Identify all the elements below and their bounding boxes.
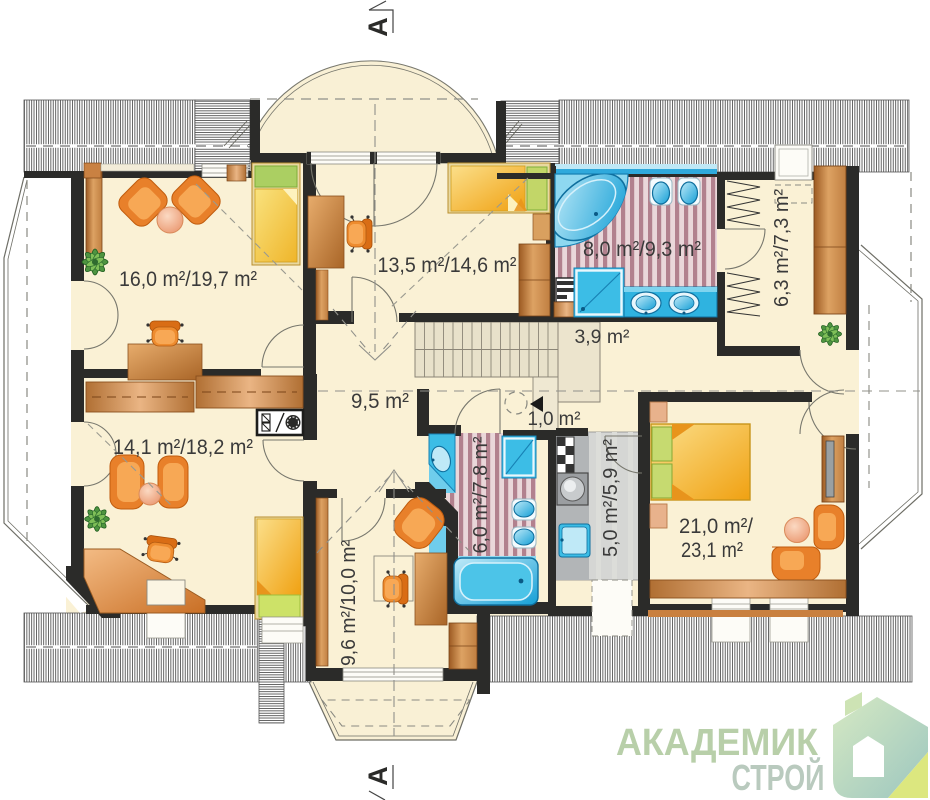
svg-text:6,3 m²/7,3 m²: 6,3 m²/7,3 m² xyxy=(771,189,793,307)
svg-text:A: A xyxy=(363,17,393,37)
svg-text:СТРОЙ: СТРОЙ xyxy=(732,756,825,798)
svg-text:14,1 m²/18,2 m²: 14,1 m²/18,2 m² xyxy=(113,436,253,459)
svg-text:5,0 m²/5,9 m²: 5,0 m²/5,9 m² xyxy=(600,439,622,557)
svg-text:1,0 m²: 1,0 m² xyxy=(528,409,581,430)
svg-text:3,9 m²: 3,9 m² xyxy=(575,327,630,348)
svg-text:9,6 m²/10,0 m²: 9,6 m²/10,0 m² xyxy=(338,540,360,666)
svg-text:9,5 m²: 9,5 m² xyxy=(351,390,409,413)
svg-text:21,0 m²/: 21,0 m²/ xyxy=(679,515,753,538)
svg-text:13,5 m²/14,6 m²: 13,5 m²/14,6 m² xyxy=(378,254,517,277)
svg-text:16,0 m²/19,7 m²: 16,0 m²/19,7 m² xyxy=(119,268,257,291)
svg-text:A: A xyxy=(363,766,393,786)
svg-text:8,0 m²/9,3 m²: 8,0 m²/9,3 m² xyxy=(583,238,701,261)
svg-text:6,0 m²/7,8 m²: 6,0 m²/7,8 m² xyxy=(470,436,492,553)
svg-text:23,1 m²: 23,1 m² xyxy=(681,539,743,562)
